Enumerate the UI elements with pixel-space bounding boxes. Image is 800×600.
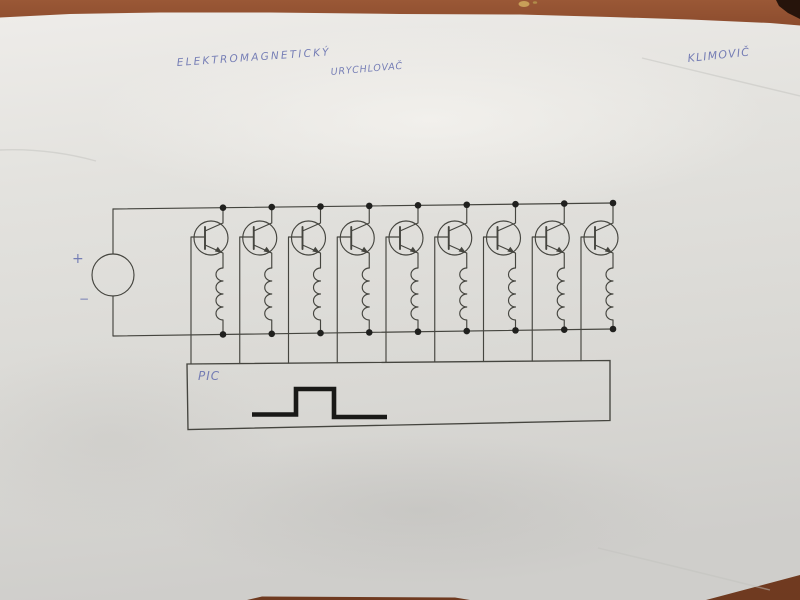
crumb-small: [533, 1, 537, 4]
junction-dot: [463, 201, 470, 208]
junction-dot: [268, 330, 275, 337]
junction-dot: [317, 203, 324, 210]
junction-dot: [268, 204, 275, 211]
junction-dot: [561, 200, 568, 207]
junction-dot: [317, 330, 324, 337]
junction-dot: [610, 326, 617, 333]
junction-dot: [463, 328, 470, 335]
junction-dot: [512, 327, 519, 334]
paper-highlight: [90, 25, 770, 215]
junction-dot: [415, 202, 422, 209]
plus-label: +: [72, 251, 84, 267]
minus-label: −: [79, 292, 89, 306]
photo-of-hand-drawn-schematic: ELEKTROMAGNETICKÝ URYCHLOVAČ KLIMOVIČ + …: [0, 0, 800, 600]
junction-dot: [415, 328, 422, 335]
pic-label: PIC: [198, 369, 220, 383]
junction-dot: [561, 326, 568, 333]
junction-dot: [366, 203, 373, 210]
junction-dot: [366, 329, 373, 336]
junction-dot: [220, 331, 227, 338]
junction-dot: [610, 200, 617, 207]
junction-dot: [512, 201, 519, 208]
junction-dot: [220, 204, 227, 211]
crumb: [519, 1, 530, 7]
